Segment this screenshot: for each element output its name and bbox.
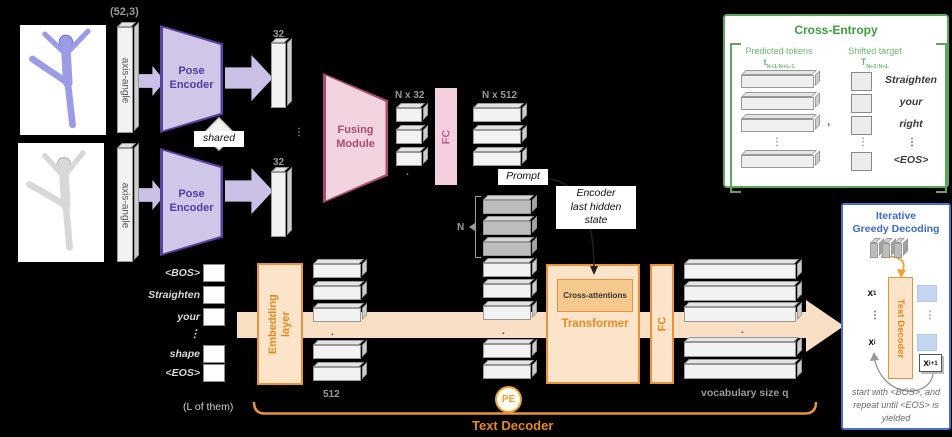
predicted-token-bar [741, 75, 814, 88]
prompt-token-bar [473, 108, 521, 122]
pose-embedding-bar-1 [271, 43, 286, 108]
pose-encoder-1: Pose Encoder [160, 25, 223, 133]
left-bracket-icon [730, 43, 741, 193]
target-word: right [875, 118, 947, 130]
xnext-token: xi+1 [919, 354, 942, 372]
dim-32-label-1: 32 [273, 29, 284, 40]
input-shape-label: (52,3) [110, 6, 139, 18]
ellipsis: ⋮ [925, 311, 935, 321]
comma-separator: , [827, 114, 830, 128]
word-token-box [203, 364, 225, 382]
predicted-token-bar [741, 119, 814, 132]
shifted-target-symbol: TN+2:N+L [827, 57, 923, 70]
n-x-32-label: N x 32 [395, 90, 424, 101]
fc-output-layer: FC [650, 264, 674, 384]
pose-figure-blue-icon [20, 25, 106, 135]
fusing-module-label-line1: Fusing [337, 124, 373, 136]
embedded-bar [313, 367, 361, 381]
embedded-bar [313, 286, 361, 300]
logit-bar [684, 342, 796, 357]
shifted-target-label: Shifted target [827, 46, 923, 56]
fusing-module: Fusing Module [323, 73, 388, 203]
embedding-layer-label-line2: layer [280, 311, 292, 337]
target-token-box [851, 72, 872, 91]
word-token-box [203, 308, 225, 326]
target-token-box [851, 94, 872, 113]
ellipsis: ⋮ [907, 138, 917, 148]
logit-bar [684, 364, 796, 379]
output-slot-box [917, 334, 937, 351]
pe-label: PE [502, 394, 515, 405]
prompt-label: Prompt [498, 169, 548, 185]
ellipsis: . [741, 326, 744, 336]
fusing-module-label-line2: Module [336, 138, 375, 150]
pose-encoder-label-line1: Pose [178, 65, 204, 77]
cross-entropy-panel: Cross-Entropy Predicted tokens tN+1:N+L-… [723, 14, 949, 188]
pose-image-1 [20, 25, 106, 135]
fc-orange-label: FC [656, 317, 668, 332]
word-token-box [203, 286, 225, 304]
target-word: Straighten [875, 74, 947, 86]
vocab-size-label: vocabulary size q [701, 387, 789, 399]
greedy-note-line1: start with <BOS>, and [852, 387, 940, 397]
positional-encoding-badge: PE [495, 386, 522, 413]
pose-encoder-2: Pose Encoder [160, 148, 223, 256]
greedy-note: start with <BOS>, and repeat until <EOS>… [843, 386, 949, 425]
pose-figure-gray-icon [18, 143, 104, 262]
embedding-layer-label-line1: Embedding [267, 294, 279, 354]
architecture-diagram: (52,3) axis-angle axis-angle P [0, 0, 952, 437]
prompt-cube [870, 243, 878, 258]
target-word: your [875, 96, 947, 108]
predicted-token-bar [741, 155, 814, 168]
cross-attentions-label: Cross-attentions [563, 291, 627, 300]
input-word: <BOS> [138, 267, 200, 279]
word-embedding-bar [483, 306, 531, 320]
decoder-flow-arrowhead-icon [806, 300, 844, 352]
ellipsis: ⋮ [870, 311, 880, 321]
shared-label: shared [194, 131, 244, 147]
input-word: shape [138, 348, 200, 360]
input-word: Straighten [138, 289, 200, 301]
fused-token-bar [396, 130, 422, 144]
ellipsis: ⋮ [772, 138, 782, 148]
logit-bar [684, 286, 796, 301]
encoder-state-line2: last hidden [571, 201, 622, 213]
word-embedding-bar [483, 365, 531, 379]
xi-token: xi [863, 334, 881, 351]
pose-image-2 [18, 143, 104, 262]
length-note-label: (L of them) [183, 401, 233, 413]
embedded-bar [313, 308, 361, 322]
pose-embedding-bar-2 [271, 172, 286, 237]
x1-sub: 1 [873, 290, 876, 297]
word-embedding-bar [483, 263, 531, 277]
dim-32-label-2: 32 [273, 157, 284, 168]
prompt-prefix-bar [483, 200, 531, 214]
encoder-state-line1: Encoder [576, 187, 615, 199]
x1-token: x1 [863, 285, 881, 302]
fc-pink-label: FC [440, 129, 452, 144]
prompt-prefix-bar [483, 242, 531, 256]
fused-token-bar [396, 152, 422, 166]
prompt-token-bar [473, 152, 521, 166]
prompt-cube [894, 243, 902, 258]
xi-sub: i [874, 339, 876, 346]
embedded-bar [313, 345, 361, 359]
greedy-title: Iterative Greedy Decoding [843, 210, 949, 236]
word-token-box [203, 264, 225, 282]
target-word: <EOS> [875, 154, 947, 166]
embedded-bar [313, 264, 361, 278]
arrow-right-icon [225, 55, 273, 101]
n-bracket-tick [469, 223, 475, 231]
word-token-box [203, 345, 225, 363]
predicted-tokens-symbol: tN+1:N+L-1 [727, 57, 831, 70]
input-word: <EOS> [138, 367, 200, 379]
n-x-512-label: N x 512 [482, 90, 517, 101]
shifted-symbol-sub: N+2:N+L [866, 64, 889, 70]
fused-token-bar [396, 108, 422, 122]
cross-entropy-title: Cross-Entropy [725, 23, 947, 37]
cross-attentions-block: Cross-attentions [557, 279, 633, 312]
axis-angle-bar-1: axis-angle [117, 27, 133, 133]
transformer-label: Transformer [548, 318, 642, 330]
fc-projection-pink: FC [435, 88, 457, 185]
encoder-state-line3: state [585, 214, 608, 226]
embedding-layer: Embedding layer [257, 263, 303, 385]
axis-angle-bar-2: axis-angle [117, 148, 133, 262]
prompt-cube [882, 243, 890, 258]
pose-encoder-label-line1: Pose [178, 188, 204, 200]
ellipsis: . [502, 327, 505, 337]
greedy-text-decoder-label: Text Decoder [895, 298, 906, 357]
pose-encoder-label-line2: Encoder [169, 202, 213, 214]
word-embedding-bar [483, 284, 531, 298]
predicted-token-bar [741, 97, 814, 110]
target-token-box [851, 116, 872, 135]
target-token-box [851, 152, 872, 171]
axis-angle-label-2: axis-angle [120, 182, 131, 228]
xnext-sub: i+1 [929, 360, 938, 367]
arrow-right-icon [225, 168, 273, 214]
text-decoder-title: Text Decoder [472, 418, 553, 433]
ellipsis: . [406, 168, 409, 178]
encoder-state-label: Encoder last hidden state [556, 186, 636, 229]
greedy-title-line1: Iterative [876, 210, 916, 222]
predicted-symbol-sub: N+1:N+L-1 [767, 64, 795, 70]
greedy-note-line3: yielded [882, 413, 911, 423]
cross-entropy-title-text: Cross-Entropy [794, 23, 877, 37]
logit-bar [684, 264, 796, 279]
n-bracket [475, 196, 481, 258]
output-slot-box [917, 285, 937, 302]
predicted-tokens-label: Predicted tokens [727, 46, 831, 56]
ellipsis: ⋮ [294, 128, 304, 138]
pose-encoder-label-line2: Encoder [169, 79, 213, 91]
input-word-ellipsis: ⋮ [138, 328, 200, 340]
prompt-prefix-bar [483, 221, 531, 235]
greedy-text-decoder-box: Text Decoder [888, 277, 913, 379]
axis-angle-label-1: axis-angle [120, 57, 131, 103]
ellipsis: ⋮ [858, 138, 868, 148]
greedy-title-line2: Greedy Decoding [853, 223, 940, 235]
logit-bar [684, 307, 796, 322]
greedy-decoding-panel: Iterative Greedy Decoding Text Decoder x… [841, 203, 951, 430]
word-embedding-bar [483, 344, 531, 358]
n-count-label: N [457, 222, 464, 233]
dim-512-label: 512 [323, 389, 340, 400]
greedy-note-line2: repeat until <EOS> is [853, 400, 939, 410]
prompt-token-bar [473, 130, 521, 144]
ellipsis: . [331, 328, 334, 338]
transformer-block: Cross-attentions Transformer [546, 264, 640, 384]
input-word: your [138, 311, 200, 323]
